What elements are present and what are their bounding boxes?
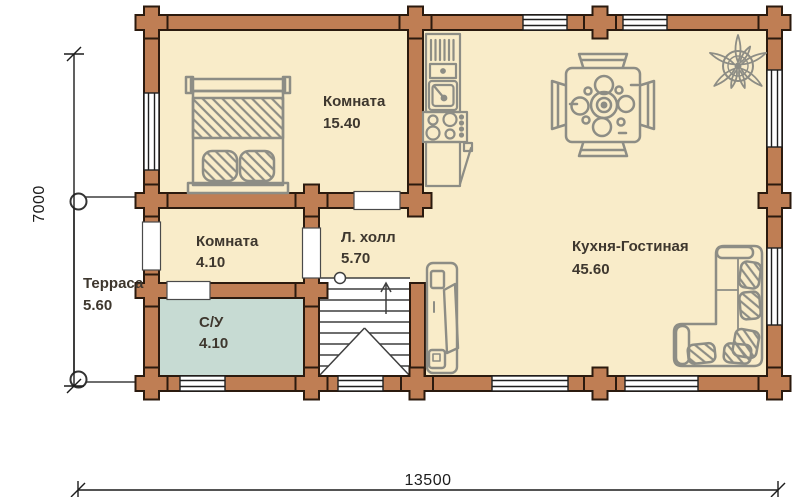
room-label-kitchen-living-area: 45.60 xyxy=(572,261,610,278)
room-label-room2-area: 4.10 xyxy=(196,254,225,271)
window-right-2 xyxy=(767,248,782,325)
door-hall-room xyxy=(303,228,321,278)
sofa-cushion xyxy=(739,291,761,320)
stairs-newel-post xyxy=(335,273,346,284)
room-label-terrace-area: 5.60 xyxy=(83,297,112,314)
dimension-left-label: 7000 xyxy=(31,185,48,223)
door-bathroom xyxy=(167,282,210,300)
bathroom-floor xyxy=(159,298,304,376)
window-bottom-1 xyxy=(180,376,225,391)
room-label-kitchen-living-name: Кухня-Гостиная xyxy=(572,238,689,255)
room-label-bedroom-name: Комната xyxy=(323,93,386,110)
pillow xyxy=(203,151,237,181)
floor-plan-drawing: Комната 15.40 Комната 4.10 Л. холл 5.70 … xyxy=(0,0,800,497)
room-label-bathroom-name: С/У xyxy=(199,314,224,331)
window-top-2 xyxy=(623,15,667,30)
window-left xyxy=(144,93,159,170)
wall-interior-stairs-east xyxy=(410,283,425,376)
door-terrace xyxy=(143,222,161,270)
room-label-hall-area: 5.70 xyxy=(341,250,370,267)
dining-table-icon xyxy=(552,54,654,156)
window-bottom-4 xyxy=(625,376,698,391)
sofa-cushion xyxy=(723,343,752,364)
window-right-1 xyxy=(767,70,782,147)
staircase-icon xyxy=(319,273,410,377)
window-bottom-3 xyxy=(492,376,568,391)
room-label-terrace-name: Терраса xyxy=(83,275,144,292)
floor-plan-page: Комната 15.40 Комната 4.10 Л. холл 5.70 … xyxy=(0,0,800,497)
pillow xyxy=(240,151,274,181)
terrace-post xyxy=(71,194,87,210)
window-top-1 xyxy=(523,15,567,30)
sofa-cushion xyxy=(687,343,716,365)
window-bottom-2 xyxy=(338,376,383,391)
room-label-hall-name: Л. холл xyxy=(341,229,396,246)
dimension-bottom-label: 13500 xyxy=(405,472,452,489)
door-bedroom xyxy=(354,192,400,210)
room-label-bathroom-area: 4.10 xyxy=(199,335,228,352)
wall-exterior-top xyxy=(144,15,782,30)
sofa-cushion xyxy=(738,261,761,290)
terrace-post xyxy=(71,372,87,388)
room-label-room2-name: Комната xyxy=(196,233,259,250)
wall-interior-bedroom-east xyxy=(408,30,423,193)
room-label-bedroom-area: 15.40 xyxy=(323,115,361,132)
